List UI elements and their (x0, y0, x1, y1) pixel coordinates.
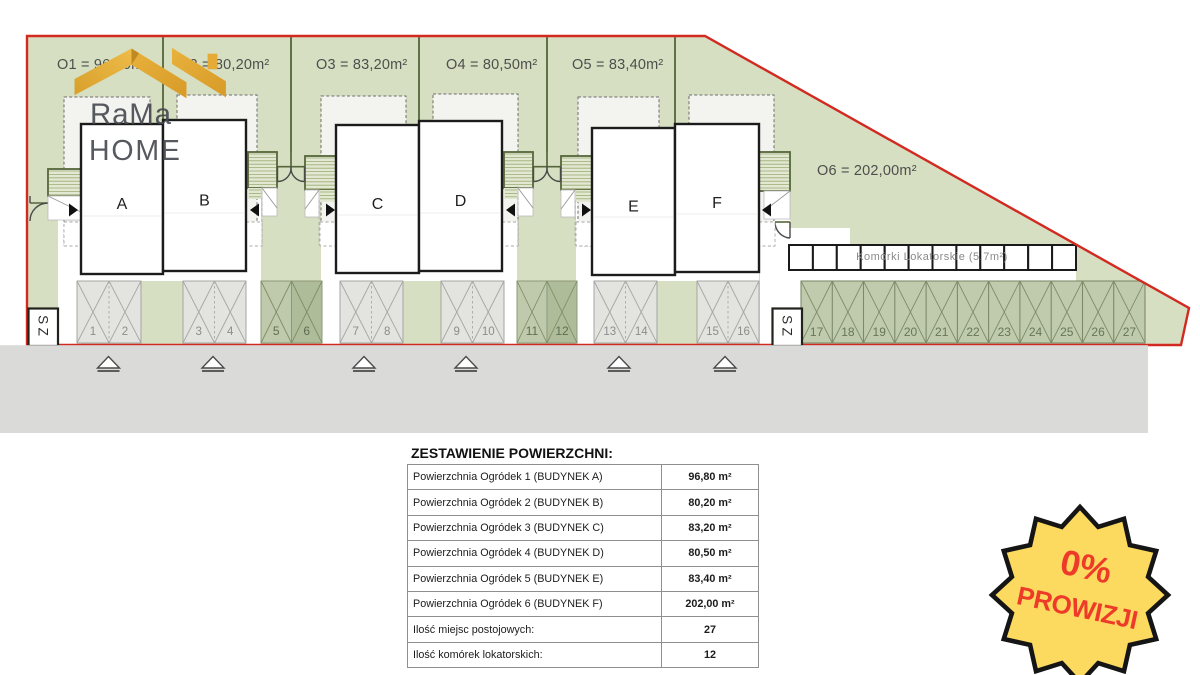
svg-text:O5 = 83,40m²: O5 = 83,40m² (572, 57, 663, 73)
svg-text:D: D (455, 193, 467, 210)
svg-text:O3 = 83,20m²: O3 = 83,20m² (316, 57, 407, 73)
svg-text:16: 16 (737, 326, 750, 338)
svg-text:20: 20 (904, 325, 918, 339)
svg-text:19: 19 (873, 325, 887, 339)
svg-text:24: 24 (1029, 325, 1043, 339)
svg-text:A: A (117, 196, 128, 213)
svg-text:15: 15 (706, 326, 719, 338)
svg-text:5: 5 (273, 324, 280, 338)
svg-text:RaMa: RaMa (90, 98, 172, 131)
svg-text:17: 17 (810, 325, 824, 339)
svg-text:Komórki Lokatorskie (5,7m²): Komórki Lokatorskie (5,7m²) (856, 251, 1008, 263)
svg-text:4: 4 (227, 326, 234, 338)
svg-text:21: 21 (935, 325, 949, 339)
svg-text:O4 = 80,50m²: O4 = 80,50m² (446, 57, 537, 73)
svg-text:22: 22 (966, 325, 980, 339)
svg-text:HOME: HOME (89, 135, 182, 167)
svg-text:E: E (628, 199, 639, 216)
svg-text:2: 2 (122, 326, 128, 338)
svg-text:9: 9 (454, 326, 460, 338)
svg-text:B: B (199, 193, 210, 210)
svg-text:26: 26 (1091, 325, 1105, 339)
svg-text:C: C (372, 196, 384, 213)
svg-text:F: F (712, 195, 722, 212)
svg-text:7: 7 (353, 326, 359, 338)
svg-text:1: 1 (90, 326, 96, 338)
svg-text:27: 27 (1123, 325, 1137, 339)
svg-text:8: 8 (384, 326, 390, 338)
svg-text:23: 23 (998, 325, 1012, 339)
svg-text:14: 14 (635, 326, 648, 338)
svg-text:13: 13 (603, 326, 616, 338)
svg-text:6: 6 (303, 324, 310, 338)
svg-text:10: 10 (482, 326, 495, 338)
svg-text:12: 12 (555, 324, 569, 338)
svg-text:25: 25 (1060, 325, 1074, 339)
svg-text:SZ: SZ (36, 315, 51, 339)
svg-text:O6 = 202,00m²: O6 = 202,00m² (817, 163, 917, 179)
svg-text:3: 3 (196, 326, 202, 338)
svg-text:SZ: SZ (780, 315, 795, 339)
svg-text:11: 11 (526, 324, 539, 338)
svg-text:18: 18 (841, 325, 855, 339)
